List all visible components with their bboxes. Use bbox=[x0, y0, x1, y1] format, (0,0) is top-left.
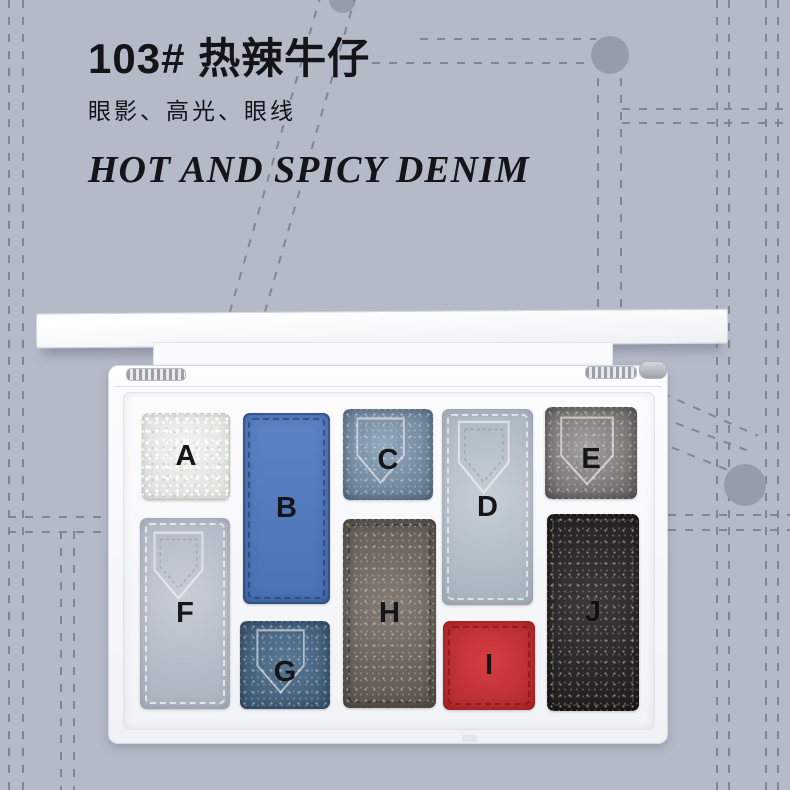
stitch-line-left-horizontal-1 bbox=[8, 516, 108, 518]
product-title-english: HOT AND SPICY DENIM bbox=[88, 148, 530, 192]
pan-letter: G bbox=[274, 642, 297, 689]
eyeshadow-pan-a: A bbox=[142, 413, 230, 500]
stitch-line-right-1 bbox=[716, 0, 718, 790]
palette-bottom-notch bbox=[462, 735, 477, 742]
product-title: 103# 热辣牛仔 bbox=[88, 36, 370, 82]
eyeshadow-pan-g: G bbox=[240, 621, 330, 709]
hinge-knob bbox=[639, 361, 667, 379]
stitch-line-right-horizontal-2 bbox=[668, 529, 790, 531]
stitch-line-diag-right-1 bbox=[662, 392, 759, 437]
eyeshadow-pan-j: J bbox=[547, 514, 639, 711]
pan-letter: C bbox=[378, 432, 399, 477]
stitch-line-top-2 bbox=[372, 62, 596, 64]
eyeshadow-pan-d: D bbox=[442, 409, 533, 605]
hinge-left bbox=[126, 368, 186, 381]
eyeshadow-pan-c: C bbox=[343, 409, 433, 500]
stitch-line-rivet-down-1 bbox=[597, 78, 599, 333]
pan-letter: D bbox=[477, 491, 498, 524]
eyeshadow-pan-h: H bbox=[343, 519, 436, 708]
product-image: 103# 热辣牛仔 眼影、高光、眼线 HOT AND SPICY DENIM A… bbox=[0, 0, 790, 790]
pan-letter: E bbox=[581, 431, 600, 476]
product-subtitle: 眼影、高光、眼线 bbox=[88, 92, 296, 126]
rivet-top-right bbox=[591, 36, 629, 74]
hinge-right bbox=[585, 366, 637, 379]
stitch-line-right-horizontal-1 bbox=[668, 514, 790, 516]
stitch-line-rivet-down-2 bbox=[620, 78, 622, 333]
eyeshadow-pan-i: I bbox=[443, 621, 535, 710]
eyeshadow-pan-f: F bbox=[140, 518, 230, 709]
rivet-middle-right bbox=[724, 464, 766, 506]
stitch-line-right-3 bbox=[765, 0, 767, 790]
stitch-line-right-4 bbox=[777, 0, 779, 790]
stitch-line-left-inner bbox=[22, 0, 24, 790]
pocket-emboss bbox=[147, 528, 210, 604]
stitch-line-right-2 bbox=[728, 0, 730, 790]
stitch-line-left-lower-1 bbox=[60, 531, 62, 790]
palette-hinge-seam bbox=[114, 386, 662, 387]
pan-letter: B bbox=[276, 492, 297, 525]
stitch-line-left-lower-2 bbox=[73, 531, 75, 790]
pan-letter: H bbox=[379, 597, 400, 630]
eyeshadow-pan-e: E bbox=[545, 407, 637, 499]
stitch-line-left-horizontal-2 bbox=[8, 531, 108, 533]
stitch-line-left-outer bbox=[8, 0, 10, 790]
pocket-emboss bbox=[451, 417, 517, 499]
pan-letter: J bbox=[585, 596, 601, 629]
pan-letter: I bbox=[485, 649, 493, 682]
eyeshadow-pan-b: B bbox=[243, 413, 330, 604]
stitch-line-top-1 bbox=[420, 38, 596, 40]
pan-letter: F bbox=[176, 597, 194, 630]
pan-letter: A bbox=[176, 440, 197, 473]
